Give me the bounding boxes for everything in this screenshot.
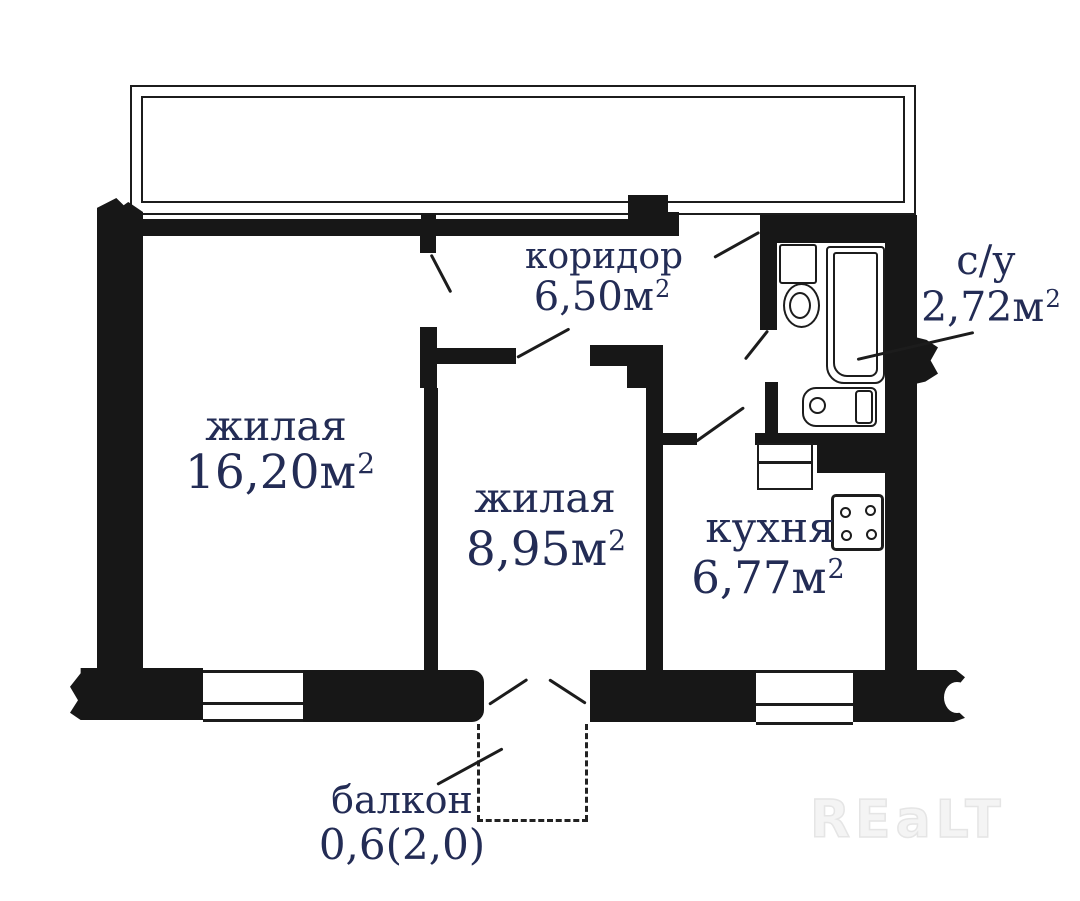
room-label-bathroom: с/у: [956, 241, 1015, 281]
window-frame-line: [756, 722, 853, 725]
door-swing-kitchen: [695, 406, 745, 443]
room-label-living1: жилая: [205, 406, 346, 447]
room-label-balcony: балкон: [331, 781, 473, 819]
door-swing-living1: [430, 254, 453, 293]
room-label-kitchen: кухня: [705, 507, 834, 549]
wall-stub-kitchen-door: [648, 433, 697, 445]
wall-bottom-3: [590, 670, 756, 722]
wall-stub-living2-door: [437, 348, 516, 364]
bathtub-inner: [833, 252, 878, 377]
wall-bathroom-left-upper: [760, 243, 777, 330]
door-jamb-living1: [420, 236, 436, 253]
realt-watermark: REaLT: [810, 794, 1006, 846]
room-area-kitchen: 6,77м2: [691, 555, 844, 600]
toilet-tank: [779, 244, 817, 284]
wall-living2-right: [646, 366, 663, 672]
wall-right: [885, 243, 917, 672]
window-kitchen: [756, 670, 853, 725]
kitchen-sink: [757, 443, 813, 490]
door-swing-bathroom: [744, 330, 769, 361]
wall-top-end-block: [628, 195, 668, 236]
stove-burner: [841, 530, 852, 541]
room-label-living2: жилая: [474, 478, 615, 519]
upper-structure-outline-inner: [141, 96, 905, 203]
stove-burner: [865, 505, 876, 516]
door-swing-balcony-left: [488, 678, 528, 706]
wall-mid-upper-block: [420, 327, 437, 388]
toilet-bowl-inner: [789, 292, 811, 319]
wall-bathroom-left-lower: [765, 382, 778, 437]
balcony-outline-bottom: [477, 819, 588, 822]
room-label-corridor: коридор: [525, 239, 683, 275]
wall-left: [97, 212, 143, 672]
kitchen-sink-line: [759, 461, 811, 464]
balcony-outline-right: [585, 724, 588, 821]
door-swing-living2: [516, 327, 570, 358]
wall-mid: [424, 388, 438, 672]
wall-bathroom-top: [760, 215, 917, 243]
door-swing-entrance: [713, 231, 760, 259]
room-area-balcony: 0,6(2,0): [319, 824, 485, 866]
room-area-living1: 16,20м2: [185, 449, 375, 496]
wall-top: [143, 219, 636, 236]
stove-burner: [866, 529, 877, 540]
room-area-bathroom: 2,72м2: [921, 287, 1061, 328]
window-frame-line: [756, 703, 853, 706]
door-swing-balcony-right: [548, 678, 587, 704]
room-area-living2: 8,95м2: [466, 526, 626, 573]
window-frame-line: [203, 702, 303, 705]
wall-break-notch: [944, 682, 970, 713]
room-area-corridor: 6,50м2: [534, 277, 670, 317]
wall-bottom-left: [70, 668, 203, 720]
stove: [831, 494, 884, 551]
wall-top-bump: [421, 213, 436, 219]
balcony-outline-left: [477, 724, 480, 821]
floor-plan: жилая 16,20м2 жилая 8,95м2 коридор 6,50м…: [0, 0, 1080, 901]
wall-top-end-block-step: [666, 212, 679, 236]
stove-burner: [840, 507, 851, 518]
window-living1: [203, 670, 303, 723]
window-frame-line: [203, 719, 303, 722]
washing-machine-knob: [809, 397, 826, 414]
washing-machine-door: [855, 390, 873, 424]
wall-bathroom-bottom-block: [817, 433, 890, 473]
wall-bottom-2: [303, 670, 484, 722]
